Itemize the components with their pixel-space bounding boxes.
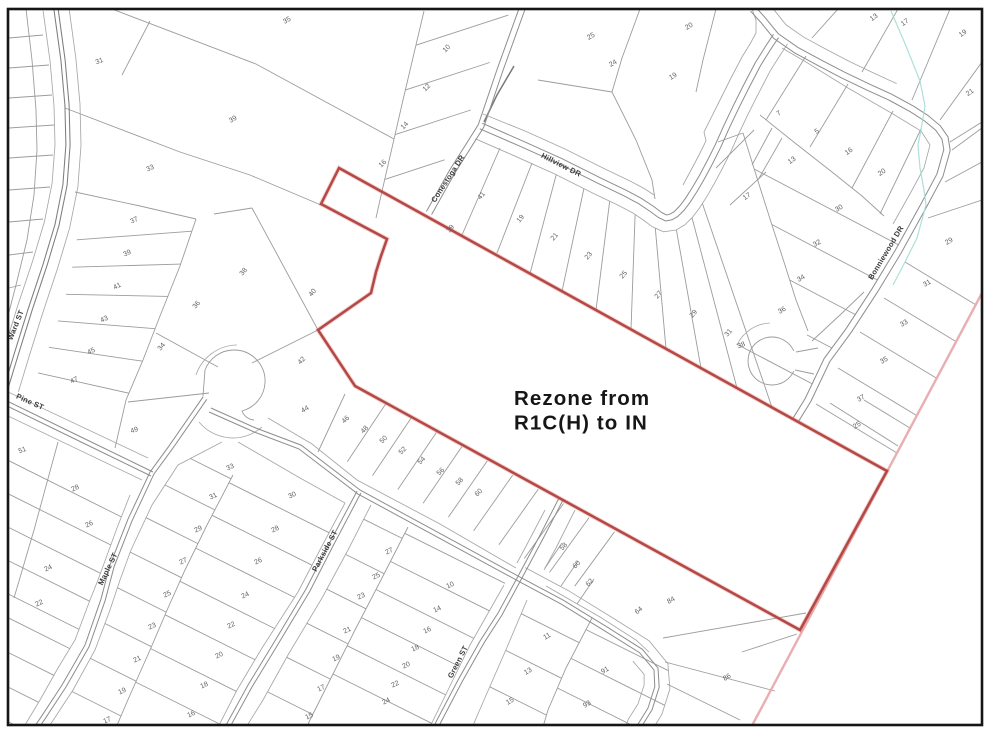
svg-text:R1C(H) to IN: R1C(H) to IN [514, 412, 648, 435]
svg-text:Rezone from: Rezone from [514, 387, 650, 410]
